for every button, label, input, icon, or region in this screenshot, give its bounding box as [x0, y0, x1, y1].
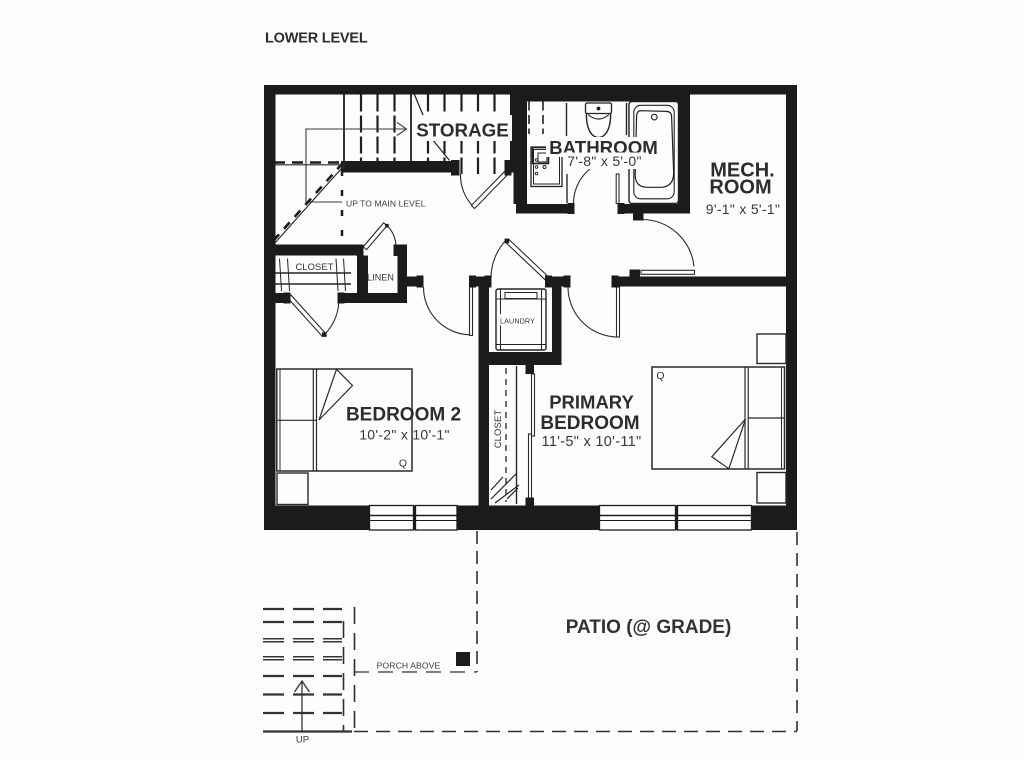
svg-text:LINEN: LINEN: [367, 273, 394, 283]
svg-text:PRIMARY: PRIMARY: [549, 392, 634, 413]
svg-text:STORAGE: STORAGE: [416, 119, 509, 140]
svg-text:LOWER LEVEL: LOWER LEVEL: [265, 31, 368, 47]
svg-text:BEDROOM: BEDROOM: [540, 413, 639, 434]
svg-text:11'-5" x 10'-11": 11'-5" x 10'-11": [542, 434, 642, 450]
svg-text:Q: Q: [656, 370, 664, 382]
svg-text:UP: UP: [296, 735, 309, 746]
svg-text:BEDROOM 2: BEDROOM 2: [346, 405, 461, 426]
svg-text:7'-8" x 5'-0": 7'-8" x 5'-0": [567, 153, 641, 169]
svg-text:9'-1" x 5'-1": 9'-1" x 5'-1": [706, 201, 780, 217]
svg-text:PATIO (@ GRADE): PATIO (@ GRADE): [566, 617, 732, 638]
svg-text:ROOM: ROOM: [709, 177, 771, 199]
svg-text:CLOSET: CLOSET: [295, 261, 333, 272]
svg-text:CLOSET: CLOSET: [493, 410, 504, 449]
svg-text:PORCH ABOVE: PORCH ABOVE: [377, 661, 441, 671]
svg-text:10'-2" x 10'-1": 10'-2" x 10'-1": [359, 427, 450, 443]
svg-text:UP TO MAIN LEVEL: UP TO MAIN LEVEL: [346, 199, 426, 209]
svg-text:LAUNDRY: LAUNDRY: [500, 317, 535, 326]
svg-text:Q: Q: [399, 458, 407, 470]
